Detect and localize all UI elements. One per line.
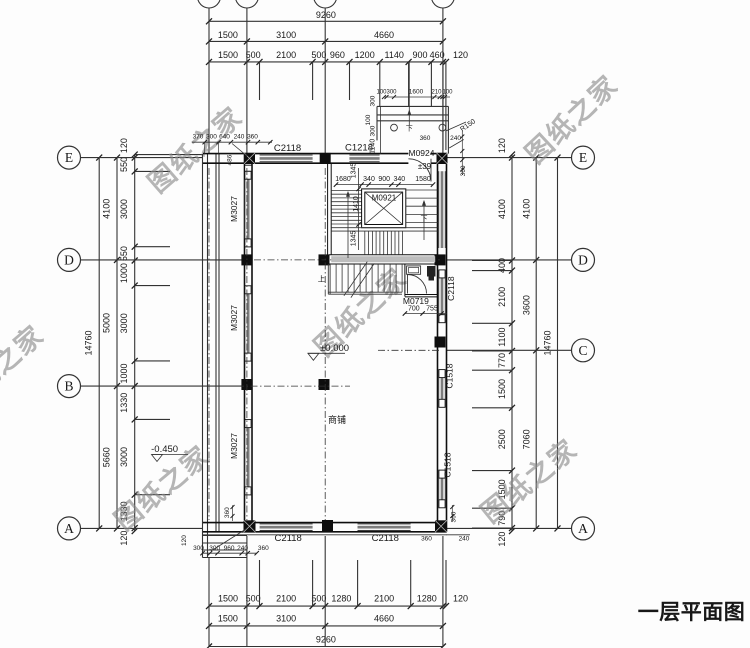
svg-text:360: 360 <box>258 545 269 552</box>
svg-text:300: 300 <box>193 545 204 552</box>
svg-text:14760: 14760 <box>84 330 94 355</box>
svg-text:3100: 3100 <box>276 613 296 623</box>
svg-text:700: 700 <box>408 306 420 313</box>
svg-text:3000: 3000 <box>119 447 129 467</box>
svg-text:1580: 1580 <box>415 176 431 183</box>
svg-text:500: 500 <box>246 594 261 604</box>
svg-text:4660: 4660 <box>374 613 394 623</box>
svg-text:2100: 2100 <box>276 50 296 60</box>
svg-text:M3027: M3027 <box>229 196 239 222</box>
svg-text:300: 300 <box>370 95 377 106</box>
svg-text:240: 240 <box>450 135 461 142</box>
svg-text:1280: 1280 <box>417 594 437 604</box>
svg-text:550: 550 <box>119 246 129 261</box>
svg-text:360: 360 <box>420 135 431 142</box>
svg-text:M0719: M0719 <box>403 296 429 306</box>
svg-text:120: 120 <box>453 50 468 60</box>
svg-text:340: 340 <box>363 176 375 183</box>
svg-text:1000: 1000 <box>119 363 129 383</box>
svg-text:商铺: 商铺 <box>328 414 346 425</box>
svg-text:C2118: C2118 <box>446 276 456 301</box>
svg-text:4100: 4100 <box>497 199 507 219</box>
svg-text:M3027: M3027 <box>229 433 239 459</box>
svg-text:C1518: C1518 <box>443 452 453 477</box>
svg-text:3000: 3000 <box>119 313 129 333</box>
svg-text:9260: 9260 <box>316 10 336 20</box>
svg-text:360: 360 <box>421 536 432 543</box>
svg-text:1500: 1500 <box>218 30 238 40</box>
svg-text:1500: 1500 <box>218 50 238 60</box>
svg-text:210: 210 <box>431 90 442 96</box>
svg-text:M0921: M0921 <box>372 194 397 203</box>
svg-text:486: 486 <box>227 154 234 165</box>
svg-text:240: 240 <box>237 545 248 552</box>
svg-text:240: 240 <box>234 134 245 141</box>
svg-text:C2118: C2118 <box>275 533 302 544</box>
svg-text:7060: 7060 <box>521 429 531 449</box>
svg-text:900: 900 <box>412 50 427 60</box>
svg-text:300: 300 <box>386 90 397 96</box>
svg-text:360: 360 <box>224 507 231 518</box>
svg-text:C: C <box>578 343 587 358</box>
svg-text:E: E <box>579 150 587 165</box>
svg-text:1680: 1680 <box>335 176 351 183</box>
svg-text:100: 100 <box>365 114 372 125</box>
svg-text:A: A <box>64 521 74 536</box>
svg-text:4660: 4660 <box>374 30 394 40</box>
svg-text:640: 640 <box>219 134 230 141</box>
svg-text:C2118: C2118 <box>274 143 301 154</box>
svg-text:300: 300 <box>370 125 377 136</box>
svg-text:M0924: M0924 <box>409 148 435 158</box>
svg-text:550: 550 <box>119 157 129 172</box>
svg-text:C1218: C1218 <box>345 143 373 154</box>
svg-text:5660: 5660 <box>101 447 111 467</box>
svg-text:1500: 1500 <box>497 379 507 399</box>
svg-text:C1518: C1518 <box>445 363 455 388</box>
svg-text:2100: 2100 <box>374 594 394 604</box>
svg-text:120: 120 <box>497 532 507 547</box>
svg-text:4100: 4100 <box>521 199 531 219</box>
svg-text:1345: 1345 <box>351 163 358 179</box>
svg-text:1200: 1200 <box>355 50 375 60</box>
svg-text:120: 120 <box>119 138 129 153</box>
svg-text:120: 120 <box>453 594 468 604</box>
svg-text:960: 960 <box>224 545 235 552</box>
svg-text:M3027: M3027 <box>229 305 239 331</box>
svg-text:2500: 2500 <box>497 429 507 449</box>
svg-text:3000: 3000 <box>119 199 129 219</box>
svg-text:1500: 1500 <box>218 613 238 623</box>
svg-text:D: D <box>64 253 74 268</box>
svg-text:240: 240 <box>459 536 470 543</box>
svg-text:上: 上 <box>318 275 326 284</box>
svg-text:D: D <box>578 253 588 268</box>
svg-text:14760: 14760 <box>543 330 553 355</box>
svg-text:1330: 1330 <box>119 393 129 413</box>
svg-text:900: 900 <box>378 176 390 183</box>
svg-text:1280: 1280 <box>331 594 351 604</box>
svg-text:1000: 1000 <box>119 263 129 283</box>
svg-text:1140: 1140 <box>385 50 404 60</box>
svg-text:5000: 5000 <box>101 313 111 333</box>
svg-text:3600: 3600 <box>521 295 531 315</box>
svg-text:100: 100 <box>442 90 453 96</box>
svg-text:4100: 4100 <box>101 199 111 219</box>
svg-text:755: 755 <box>426 306 438 313</box>
svg-text:370: 370 <box>193 134 204 141</box>
svg-text:120: 120 <box>181 535 188 546</box>
svg-text:1600: 1600 <box>409 89 424 96</box>
svg-text:500: 500 <box>246 50 261 60</box>
svg-text:9260: 9260 <box>316 635 336 645</box>
svg-text:E: E <box>65 150 73 165</box>
svg-text:300: 300 <box>206 134 217 141</box>
svg-text:2100: 2100 <box>276 594 296 604</box>
svg-text:770: 770 <box>497 353 507 368</box>
svg-text:一层平面图: 一层平面图 <box>638 601 746 624</box>
svg-text:1100: 1100 <box>497 327 507 346</box>
svg-text:C2118: C2118 <box>372 533 399 544</box>
svg-text:340: 340 <box>393 176 405 183</box>
svg-text:-0.450: -0.450 <box>151 444 178 455</box>
svg-text:360: 360 <box>247 134 258 141</box>
svg-text:B: B <box>64 379 73 394</box>
svg-text:1345: 1345 <box>351 231 358 247</box>
svg-text:2100: 2100 <box>497 287 507 307</box>
svg-text:500: 500 <box>311 594 326 604</box>
svg-text:500: 500 <box>311 50 326 60</box>
svg-text:下: 下 <box>421 215 428 223</box>
svg-text:960: 960 <box>330 50 345 60</box>
svg-text:3100: 3100 <box>276 30 296 40</box>
svg-text:±39: ±39 <box>418 162 432 171</box>
svg-text:A: A <box>578 521 588 536</box>
svg-text:下: 下 <box>406 125 413 133</box>
svg-text:1500: 1500 <box>218 594 238 604</box>
svg-text:±0.000: ±0.000 <box>320 343 349 354</box>
svg-text:120: 120 <box>497 138 507 153</box>
